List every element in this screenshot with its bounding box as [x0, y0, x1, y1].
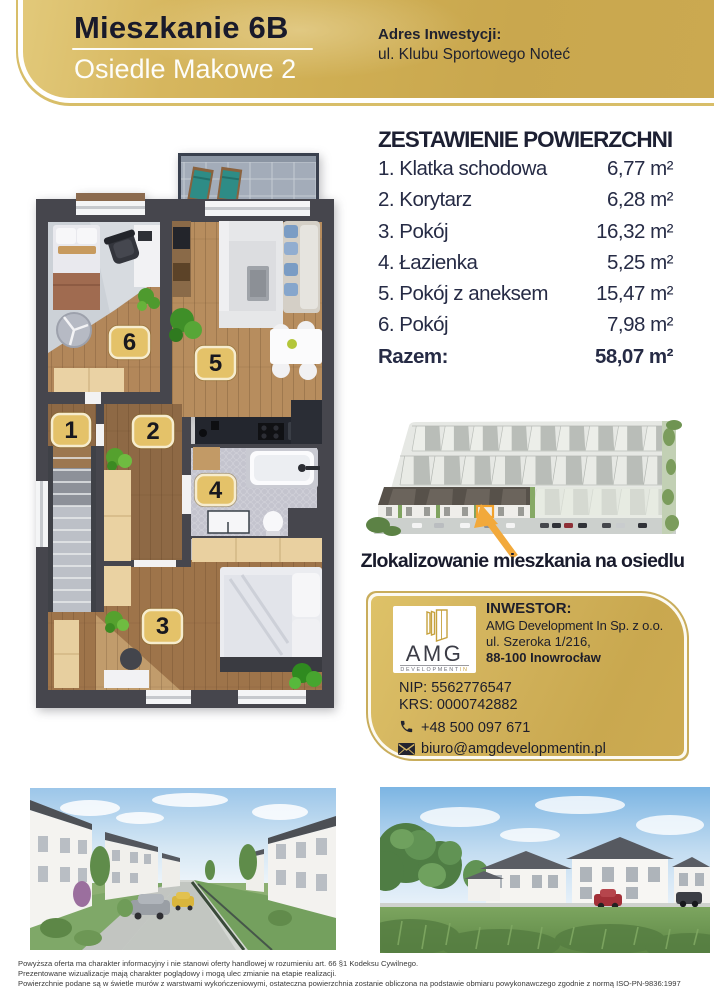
svg-text:6: 6 [123, 329, 136, 356]
svg-text:5: 5 [209, 350, 222, 377]
svg-text:1: 1 [64, 417, 77, 444]
svg-text:4: 4 [209, 477, 223, 504]
svg-text:2: 2 [146, 418, 159, 445]
svg-text:3: 3 [156, 613, 169, 640]
